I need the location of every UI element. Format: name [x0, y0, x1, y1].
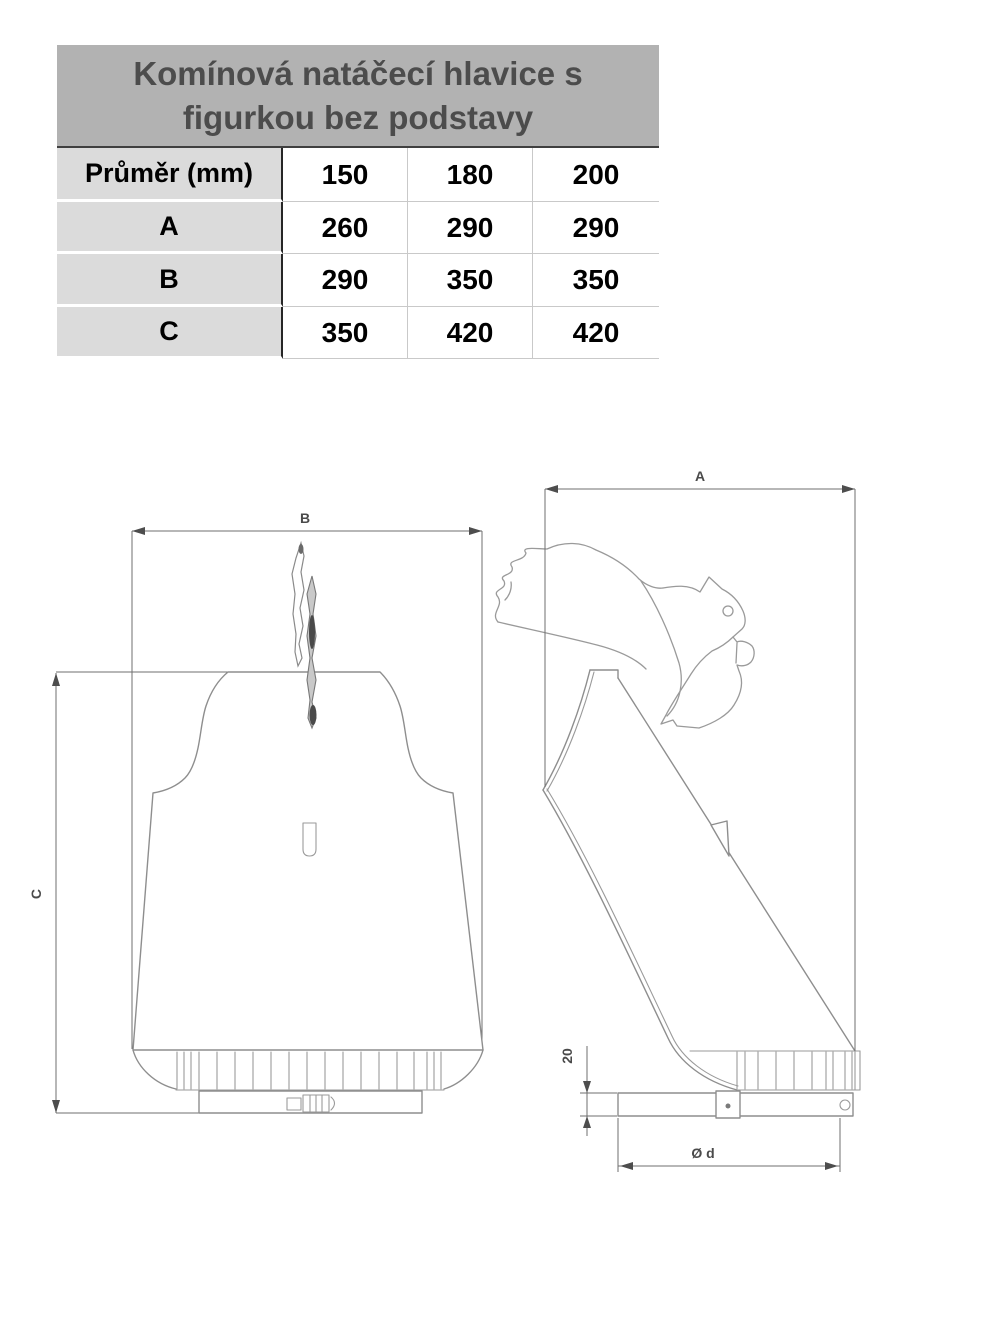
side-dim-diameter: Ø d	[618, 1118, 840, 1172]
side-latch-tab	[711, 821, 729, 856]
front-width-label: B	[300, 510, 310, 526]
technical-drawing: B C	[0, 0, 998, 1332]
diameter-label: Ø d	[691, 1145, 714, 1161]
front-view: B C	[28, 510, 483, 1113]
front-collar	[199, 1091, 422, 1113]
squirrel-fill	[495, 543, 754, 728]
front-height-label: C	[28, 889, 44, 899]
side-cover	[543, 670, 855, 1090]
front-corrugated-band	[176, 1052, 444, 1090]
front-body-outline	[133, 672, 483, 1050]
side-view: A 20 Ø d	[495, 468, 860, 1172]
front-left-flare	[133, 1050, 176, 1089]
collar-height-label: 20	[559, 1048, 575, 1064]
front-right-flare	[444, 1050, 483, 1089]
side-dim-collar-height: 20	[559, 1046, 617, 1136]
side-corrugated-band	[690, 1051, 860, 1090]
squirrel-figurine	[495, 543, 754, 728]
side-width-label: A	[695, 468, 705, 484]
page: Komínová natáčecí hlavice s figurkou bez…	[0, 0, 998, 1332]
side-collar	[618, 1091, 853, 1118]
